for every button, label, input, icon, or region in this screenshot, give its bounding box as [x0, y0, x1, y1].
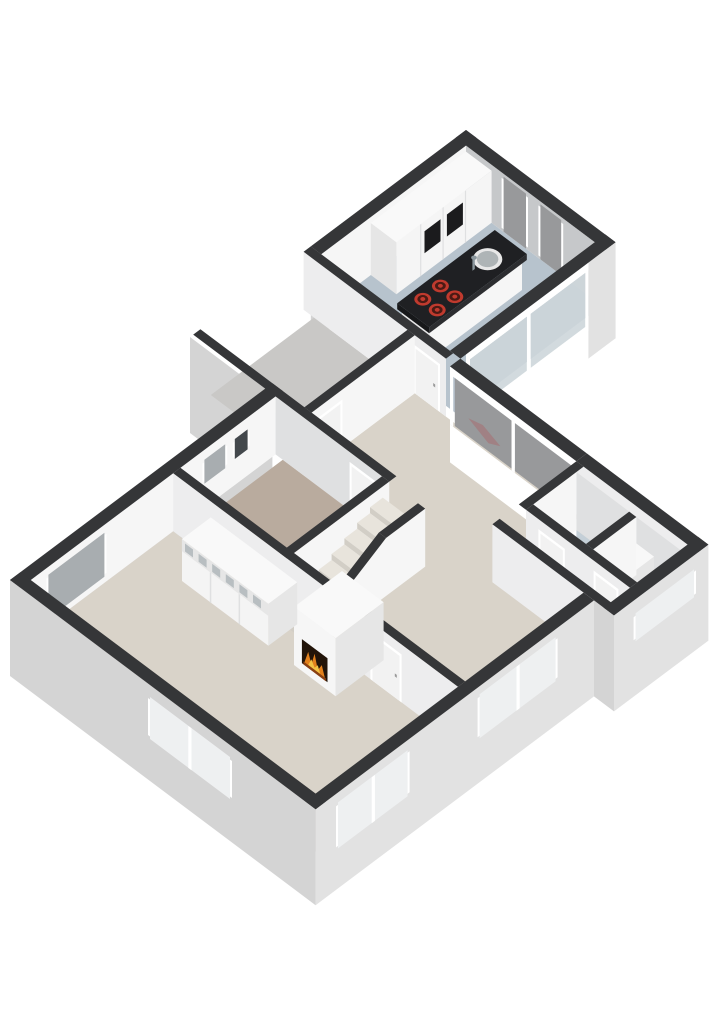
sliding-door-post-2 [527, 306, 531, 377]
kitchen-southeast-wall-stub [588, 242, 615, 358]
hall-glass-post-2 [512, 415, 515, 473]
cabinet-divider-3 [420, 224, 421, 277]
southwest-window-mullion [188, 726, 191, 770]
cabinet-divider-1 [465, 190, 466, 243]
wing-south-wall-exterior [594, 600, 614, 711]
southeast-window-2-mullion [372, 775, 375, 823]
hall-glass-post-1 [450, 368, 453, 426]
sliding-door-post-1 [585, 263, 588, 333]
cabinet-divider-2 [443, 207, 444, 260]
floorplan-svg [0, 0, 724, 1024]
wardrobe-gap-2 [239, 594, 241, 625]
wardrobe-gap-1 [210, 572, 212, 603]
southeast-window-1-mullion [517, 664, 520, 710]
floorplan-canvas [0, 0, 724, 1024]
